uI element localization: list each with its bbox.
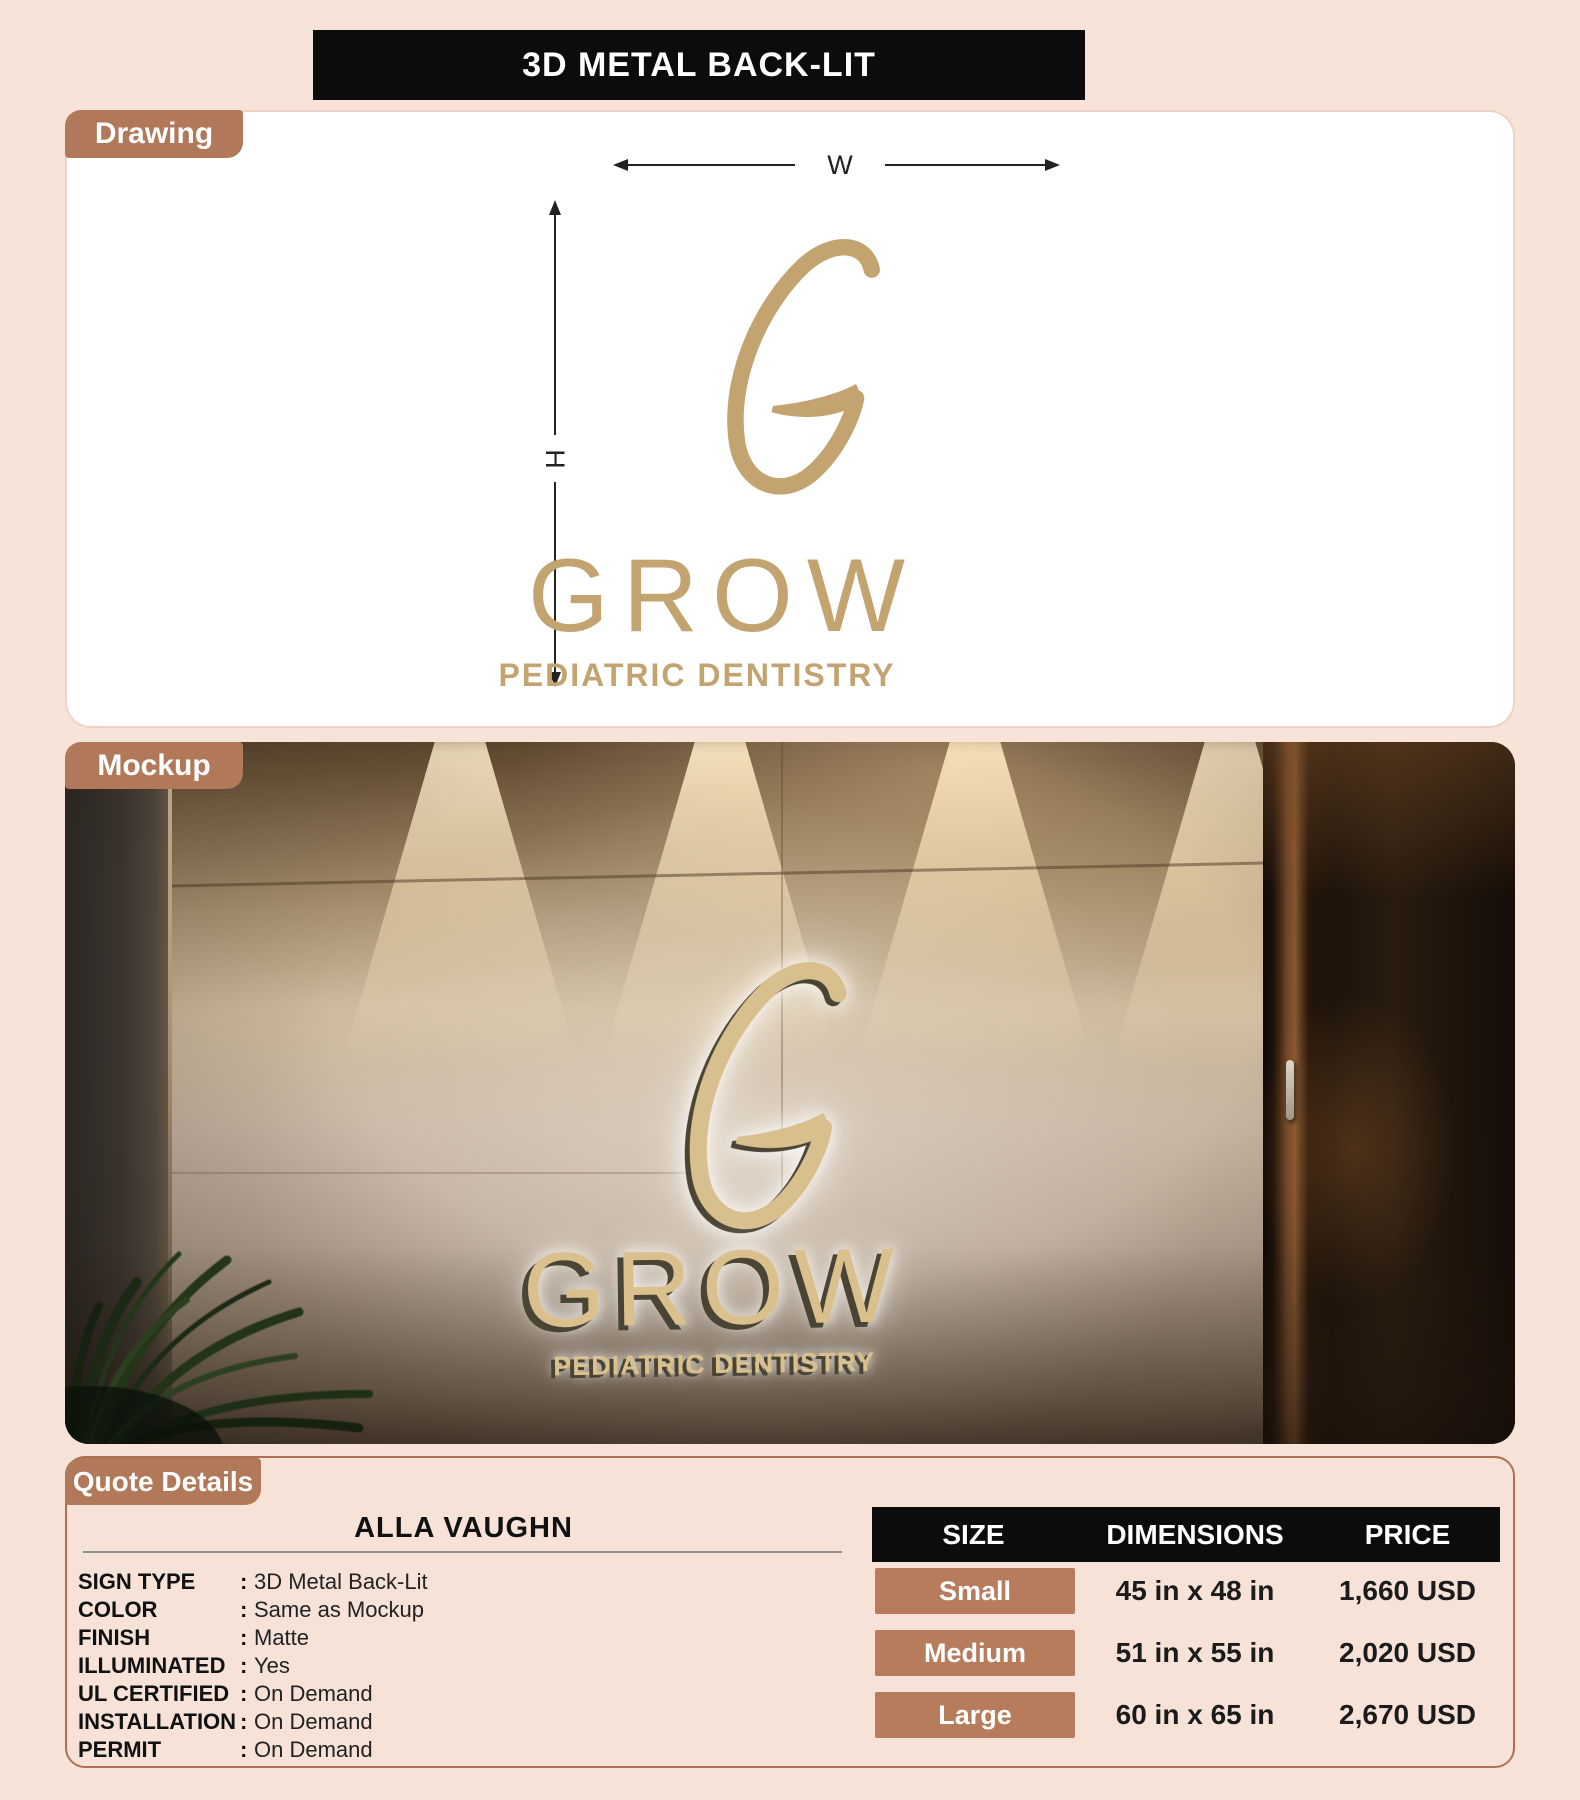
- tab-drawing: Drawing: [65, 110, 243, 158]
- price-value: 2,020 USD: [1315, 1639, 1500, 1667]
- spec-colon: :: [240, 1655, 254, 1677]
- backlit-sign: GROW PEDIATRIC DENTISTRY: [65, 742, 1515, 1444]
- spec-label: PERMIT: [78, 1739, 240, 1761]
- tab-quote-details: Quote Details: [65, 1458, 261, 1505]
- spec-value: On Demand: [254, 1739, 373, 1761]
- price-value: 2,670 USD: [1315, 1701, 1500, 1729]
- dimensions-value: 60 in x 65 in: [1075, 1701, 1315, 1729]
- spec-row: PERMIT : On Demand: [78, 1736, 838, 1764]
- customer-divider: [83, 1551, 842, 1553]
- size-option-medium[interactable]: Medium: [875, 1630, 1075, 1676]
- spec-label: ILLUMINATED: [78, 1655, 240, 1677]
- spec-label: INSTALLATION: [78, 1711, 240, 1733]
- spec-colon: :: [240, 1683, 254, 1705]
- dim-arrow-right: [1045, 159, 1060, 171]
- mockup-photo: GROW PEDIATRIC DENTISTRY: [65, 742, 1515, 1444]
- spec-value: Matte: [254, 1627, 309, 1649]
- spec-row: FINISH : Matte: [78, 1624, 838, 1652]
- spec-value: On Demand: [254, 1711, 373, 1733]
- dim-label-w: W: [795, 152, 885, 179]
- sign-monogram-g: [648, 946, 897, 1259]
- spec-colon: :: [240, 1627, 254, 1649]
- spec-row: SIGN TYPE : 3D Metal Back-Lit: [78, 1568, 838, 1596]
- spec-value: Yes: [254, 1655, 290, 1677]
- dim-line-w-right: [885, 164, 1045, 166]
- spec-value: 3D Metal Back-Lit: [254, 1571, 428, 1593]
- spec-row: UL CERTIFIED : On Demand: [78, 1680, 838, 1708]
- logo-monogram-g: [690, 224, 925, 522]
- page-title: 3D METAL BACK-LIT: [313, 30, 1085, 100]
- spec-colon: :: [240, 1711, 254, 1733]
- sign-tagline: PEDIATRIC DENTISTRY: [517, 1348, 912, 1381]
- logo-wordmark: GROW: [528, 544, 908, 648]
- dim-line-w-left: [626, 164, 795, 166]
- spec-colon: :: [240, 1739, 254, 1761]
- spec-row: COLOR : Same as Mockup: [78, 1596, 838, 1624]
- price-value: 1,660 USD: [1315, 1577, 1500, 1605]
- spec-label: UL CERTIFIED: [78, 1683, 240, 1705]
- spec-colon: :: [240, 1599, 254, 1621]
- spec-row: ILLUMINATED : Yes: [78, 1652, 838, 1680]
- sign-wordmark: GROW: [522, 1232, 903, 1343]
- dimensions-value: 51 in x 55 in: [1075, 1639, 1315, 1667]
- col-header-price: PRICE: [1315, 1519, 1500, 1551]
- quote-sheet: 3D METAL BACK-LIT Drawing W H GROW PEDIA…: [0, 0, 1580, 1800]
- spec-colon: :: [240, 1571, 254, 1593]
- logo-tagline: PEDIATRIC DENTISTRY: [480, 659, 914, 691]
- size-option-large[interactable]: Large: [875, 1692, 1075, 1738]
- size-option-small[interactable]: Small: [875, 1568, 1075, 1614]
- spec-row: INSTALLATION : On Demand: [78, 1708, 838, 1736]
- dim-label-h: H: [540, 444, 570, 474]
- spec-label: FINISH: [78, 1627, 240, 1649]
- spec-value: On Demand: [254, 1683, 373, 1705]
- spec-label: COLOR: [78, 1599, 240, 1621]
- pricing-table-header: SIZE DIMENSIONS PRICE: [872, 1507, 1500, 1562]
- spec-label: SIGN TYPE: [78, 1571, 240, 1593]
- dimensions-value: 45 in x 48 in: [1075, 1577, 1315, 1605]
- col-header-size: SIZE: [872, 1519, 1075, 1551]
- col-header-dimensions: DIMENSIONS: [1075, 1519, 1315, 1551]
- dim-line-h-top: [554, 213, 556, 435]
- tab-mockup: Mockup: [65, 742, 243, 789]
- spec-value: Same as Mockup: [254, 1599, 424, 1621]
- customer-name: ALLA VAUGHN: [85, 1514, 842, 1543]
